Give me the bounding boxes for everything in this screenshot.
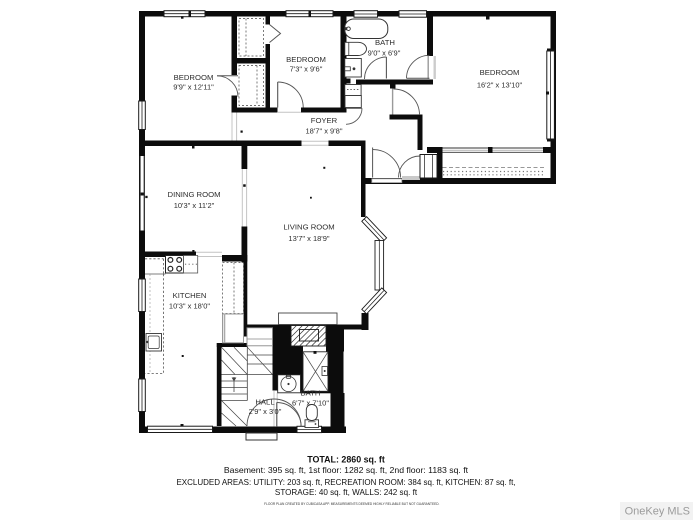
svg-text:BEDROOM: BEDROOM [286,55,326,64]
svg-text:16'2" x 13'10": 16'2" x 13'10" [477,81,523,90]
svg-text:10'3" x 11'2": 10'3" x 11'2" [174,201,215,210]
svg-text:7'3" x 9'6": 7'3" x 9'6" [290,65,323,74]
svg-text:DINING ROOM: DINING ROOM [168,190,221,199]
svg-text:FLOOR PLAN CREATED BY CUBICASA: FLOOR PLAN CREATED BY CUBICASA APP. MEAS… [264,502,439,506]
svg-text:2'9" x 3'0": 2'9" x 3'0" [249,407,282,416]
svg-text:BEDROOM: BEDROOM [174,73,214,82]
svg-text:STORAGE: 40 sq. ft, WALLS: 242: STORAGE: 40 sq. ft, WALLS: 242 sq. ft [275,488,418,497]
svg-text:9'9" x 12'11": 9'9" x 12'11" [173,83,214,92]
svg-text:6'7" x 7'10": 6'7" x 7'10" [292,399,329,408]
svg-text:BATH: BATH [375,38,395,47]
svg-text:10'3" x 18'0": 10'3" x 18'0" [169,302,210,311]
svg-text:EXCLUDED AREAS: UTILITY: 203 s: EXCLUDED AREAS: UTILITY: 203 sq. ft, REC… [176,478,515,487]
svg-text:TOTAL: 2860 sq. ft: TOTAL: 2860 sq. ft [307,455,385,465]
svg-text:Basement: 395 sq. ft, 1st floo: Basement: 395 sq. ft, 1st floor: 1282 sq… [224,465,469,475]
svg-text:OneKey MLS: OneKey MLS [625,506,690,518]
svg-text:9'0" x 6'9": 9'0" x 6'9" [368,49,401,58]
svg-text:BEDROOM: BEDROOM [480,68,520,77]
svg-text:KITCHEN: KITCHEN [173,291,207,300]
svg-text:HALL: HALL [255,398,275,407]
svg-text:13'7" x 18'9": 13'7" x 18'9" [288,234,329,243]
svg-text:BATH: BATH [301,389,321,398]
svg-text:18'7" x 9'8": 18'7" x 9'8" [306,127,343,136]
svg-text:FOYER: FOYER [311,116,338,125]
svg-text:LIVING ROOM: LIVING ROOM [283,223,334,232]
